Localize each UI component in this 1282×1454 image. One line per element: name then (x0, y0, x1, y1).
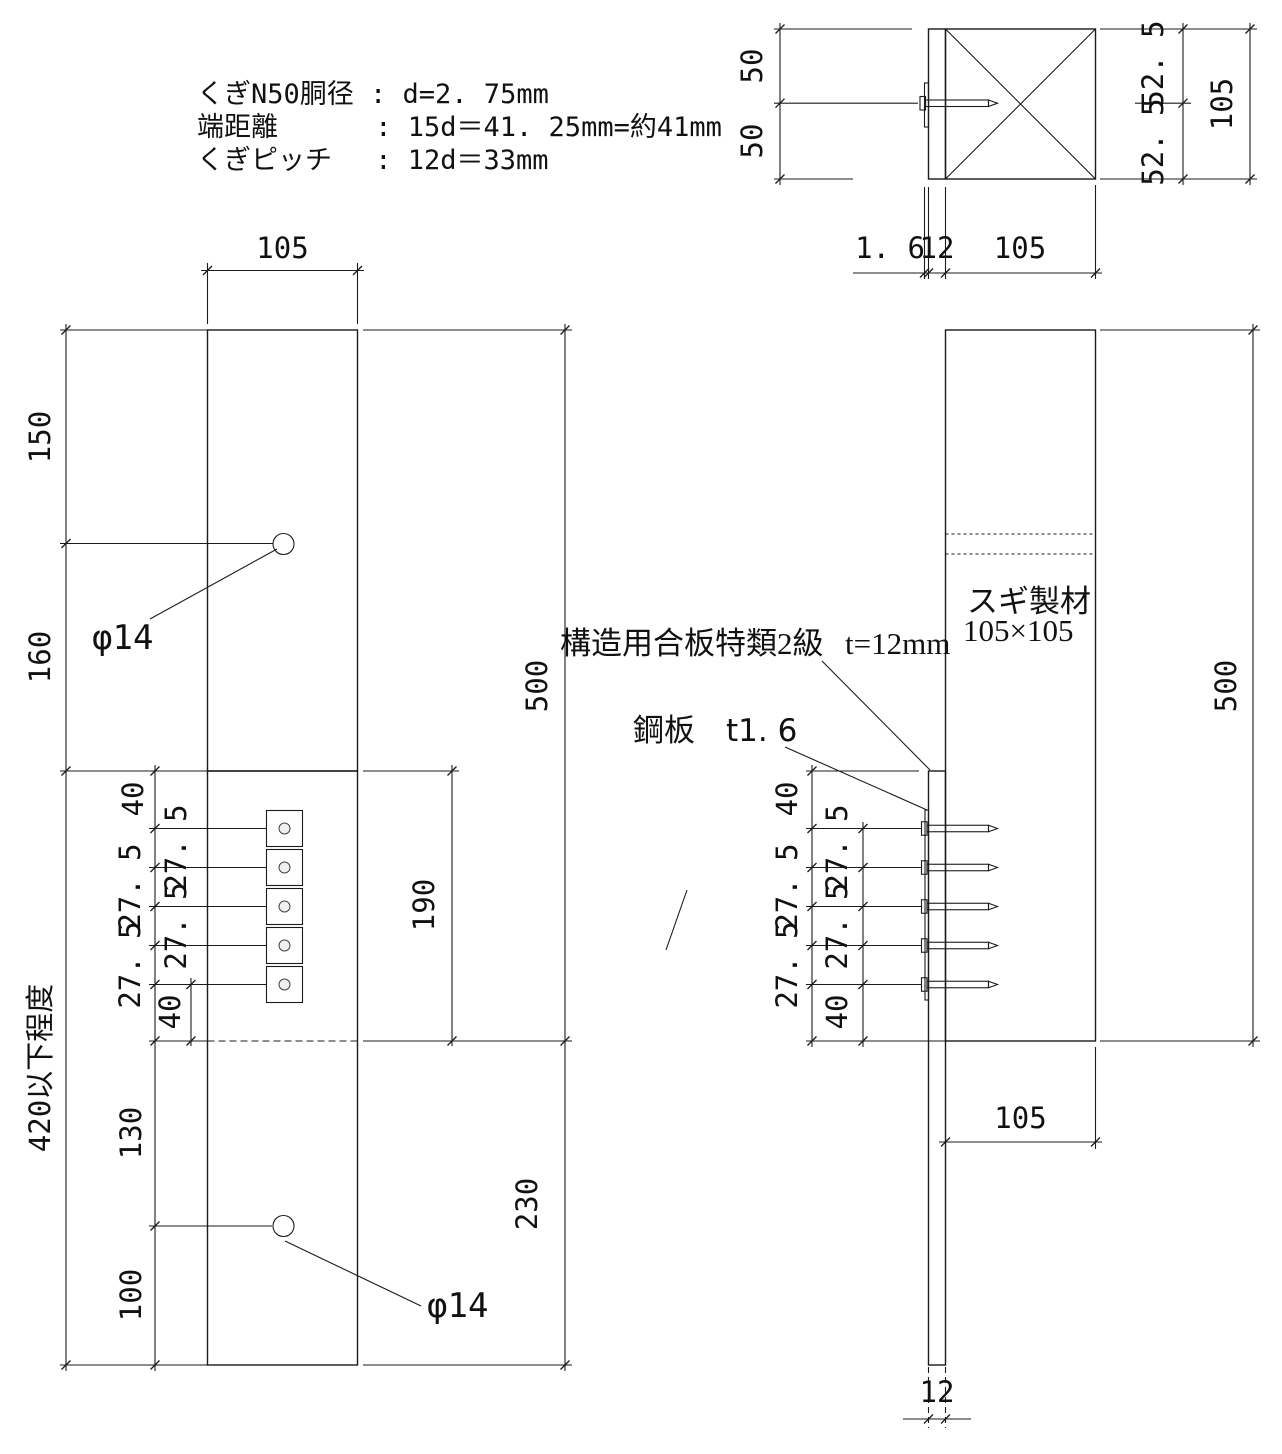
nail-point (279, 940, 290, 951)
front-plywood-overlay (208, 771, 358, 1365)
plan-plywood-section (929, 29, 946, 179)
nail-joint-drawing: くぎN50胴径 : d=2. 75mm 端距離 : 15d＝41. 25mm=約… (0, 0, 1282, 1454)
front-dim-pitch-4: 27. 5 (113, 921, 147, 1008)
front-dim-40-top: 40 (116, 782, 150, 817)
plan-dim-1-6: 1. 6 (855, 231, 925, 265)
cad-drawing-canvas: くぎN50胴径 : d=2. 75mm 端距離 : 15d＝41. 25mm=約… (0, 0, 1282, 1454)
front-dim-500-230-chain: 500 230 (363, 324, 572, 1371)
plan-dim-50-bottom: 50 (735, 124, 769, 159)
note-line-2: 端距離 : 15d＝41. 25mm=約41mm (197, 112, 722, 143)
notes-block: くぎN50胴径 : d=2. 75mm 端距離 : 15d＝41. 25mm=約… (197, 79, 722, 176)
side-dim-pitch-1: 27. 5 (820, 804, 854, 891)
plywood-leader (822, 661, 930, 770)
side-dim-105-bottom: 105 (939, 1047, 1102, 1149)
side-dim-12-bottom: 12 (903, 1367, 971, 1428)
front-dim-pitch-1: 27. 5 (159, 804, 193, 891)
nail (922, 900, 998, 914)
side-nails (922, 822, 998, 992)
plywood-label: 構造用合板特類2級 (560, 626, 824, 661)
side-dim-12-label: 12 (920, 1375, 955, 1409)
phi14-bottom-label: φ14 (427, 1286, 488, 1326)
front-dim-190-chain: 190 (363, 765, 572, 1046)
plan-dim-50-top: 50 (735, 49, 769, 84)
front-post-upper (208, 330, 358, 771)
front-dim-230: 230 (510, 1178, 544, 1230)
stray-mark-line (666, 890, 687, 950)
bolt-hole-top (273, 534, 294, 555)
front-dim-190: 190 (407, 879, 441, 931)
front-dim-160: 160 (23, 631, 57, 683)
front-dim-100: 100 (114, 1269, 148, 1321)
plan-dim-105-right: 105 (1205, 78, 1239, 130)
note-line-3: くぎピッチ : 12d＝33mm (197, 145, 549, 176)
nail-point (279, 901, 290, 912)
plan-post-cross-mark (946, 29, 1096, 179)
side-dim-pitch-chains: 40 27. 5 27. 5 27. 5 27. 5 40 (770, 765, 946, 1047)
steel-plate-leader (785, 747, 927, 810)
side-dim-500: 500 (1209, 660, 1243, 712)
plan-dim-52-5-bottom: 52. 5 (1136, 98, 1170, 185)
phi14-top-label: φ14 (92, 618, 153, 658)
plan-dim-105-bottom: 105 (994, 231, 1046, 265)
plan-dim-right: 52. 5 52. 5 105 (1100, 20, 1257, 185)
bolt-hole-bottom (273, 1216, 294, 1237)
side-post (946, 330, 1096, 1041)
nail-point (279, 979, 290, 990)
plan-dim-left: 50 50 (735, 23, 918, 185)
nail (922, 978, 998, 992)
front-dim-500: 500 (520, 660, 554, 712)
front-dim-pitch-2: 27. 5 (113, 843, 147, 930)
side-labels: スギ製材 105×105 構造用合板特類2級 t=12mm 鋼板 t1. 6 (560, 584, 1091, 810)
plan-view: 50 50 52. 5 52. 5 105 1. 6 12 105 (735, 20, 1257, 279)
front-dim-130: 130 (114, 1107, 148, 1159)
side-dim-pitch-2: 27. 5 (770, 843, 804, 930)
plan-nail-shaft (926, 100, 989, 107)
plan-nail-tip (989, 100, 998, 107)
front-dim-40-bottom: 40 (153, 995, 187, 1030)
front-dim-outer-chain: 150 160 420以下程度 (23, 324, 273, 1371)
plan-nail (920, 97, 998, 111)
plywood-thickness-label: t=12mm (845, 626, 950, 661)
phi14-bottom-leader (285, 1241, 421, 1306)
nail (922, 861, 998, 875)
side-view: 40 27. 5 27. 5 27. 5 27. 5 40 500 105 12 (560, 324, 1260, 1428)
steel-plate-label: 鋼板 t1. 6 (633, 713, 797, 749)
side-dim-500-chain: 500 (1100, 324, 1260, 1047)
phi14-top-leader (150, 549, 277, 619)
plan-dim-52-5-top: 52. 5 (1136, 20, 1170, 107)
nail (922, 822, 998, 836)
post-size-label: 105×105 (963, 613, 1073, 648)
front-view: 105 150 160 420以下程度 40 27. 5 27. 5 27. 5… (23, 231, 572, 1371)
front-dim-width: 105 (201, 231, 364, 324)
front-dim-420-ikateido: 420以下程度 (23, 984, 57, 1152)
side-dim-pitch-4: 27. 5 (770, 921, 804, 1008)
nail-point (279, 862, 290, 873)
front-dim-inner-chain: 40 27. 5 27. 5 27. 5 27. 5 40 130 100 (113, 765, 272, 1371)
side-plywood (929, 771, 946, 1365)
front-dim-105-top: 105 (256, 231, 308, 265)
front-nail-plates (267, 811, 303, 1003)
side-dim-pitch-3: 27. 5 (820, 882, 854, 969)
front-dim-150: 150 (23, 411, 57, 463)
note-line-1: くぎN50胴径 : d=2. 75mm (197, 79, 549, 110)
plan-dim-bottom: 1. 6 12 105 (853, 185, 1102, 279)
side-dim-40-bottom: 40 (820, 995, 854, 1030)
nail-point (279, 823, 290, 834)
side-dim-40-top: 40 (770, 782, 804, 817)
side-dim-105-label: 105 (994, 1101, 1046, 1135)
side-hole-hidden-lines (946, 534, 1096, 554)
plan-dim-12: 12 (920, 231, 955, 265)
nail (922, 939, 998, 953)
front-dim-pitch-3: 27. 5 (159, 882, 193, 969)
